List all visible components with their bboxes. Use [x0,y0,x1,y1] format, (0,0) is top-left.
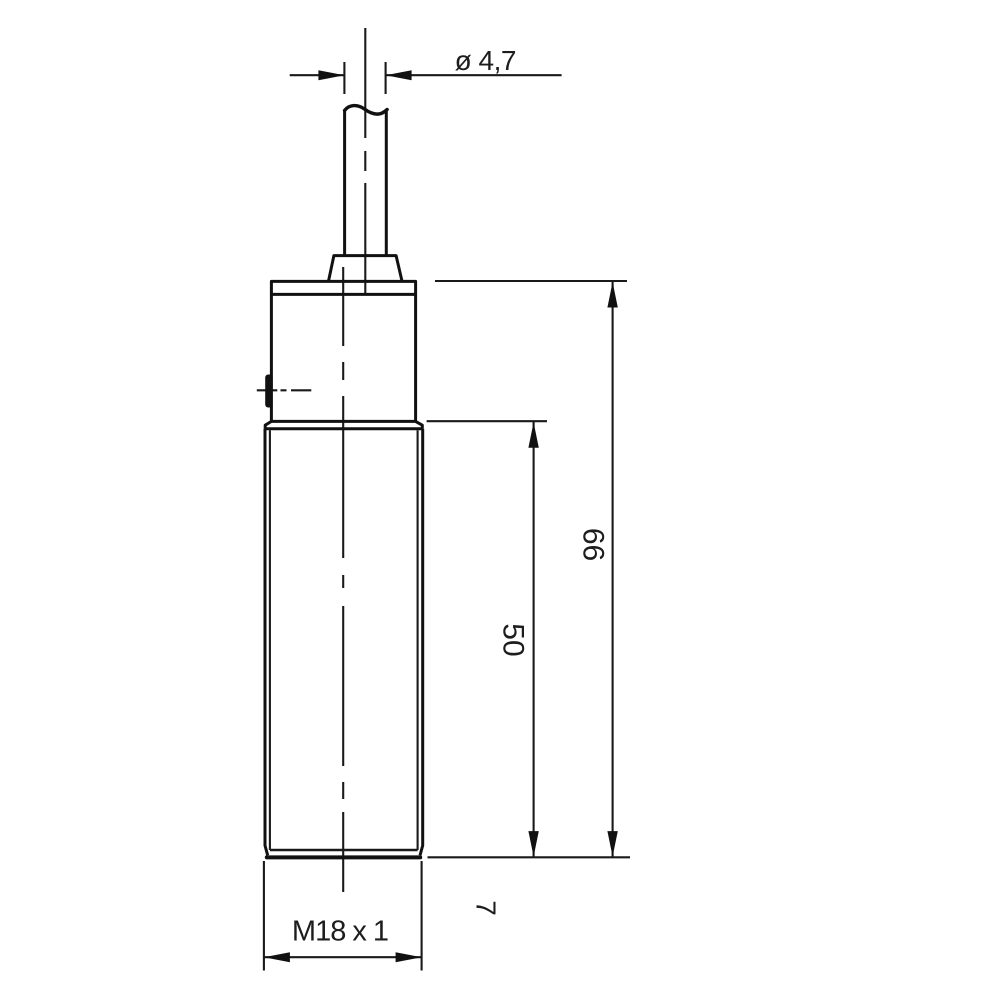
svg-text:7: 7 [471,900,502,916]
svg-text:ø 4,7: ø 4,7 [455,45,516,76]
svg-text:M18 x 1: M18 x 1 [292,916,388,948]
svg-text:66: 66 [577,528,610,561]
svg-text:50: 50 [497,623,530,656]
